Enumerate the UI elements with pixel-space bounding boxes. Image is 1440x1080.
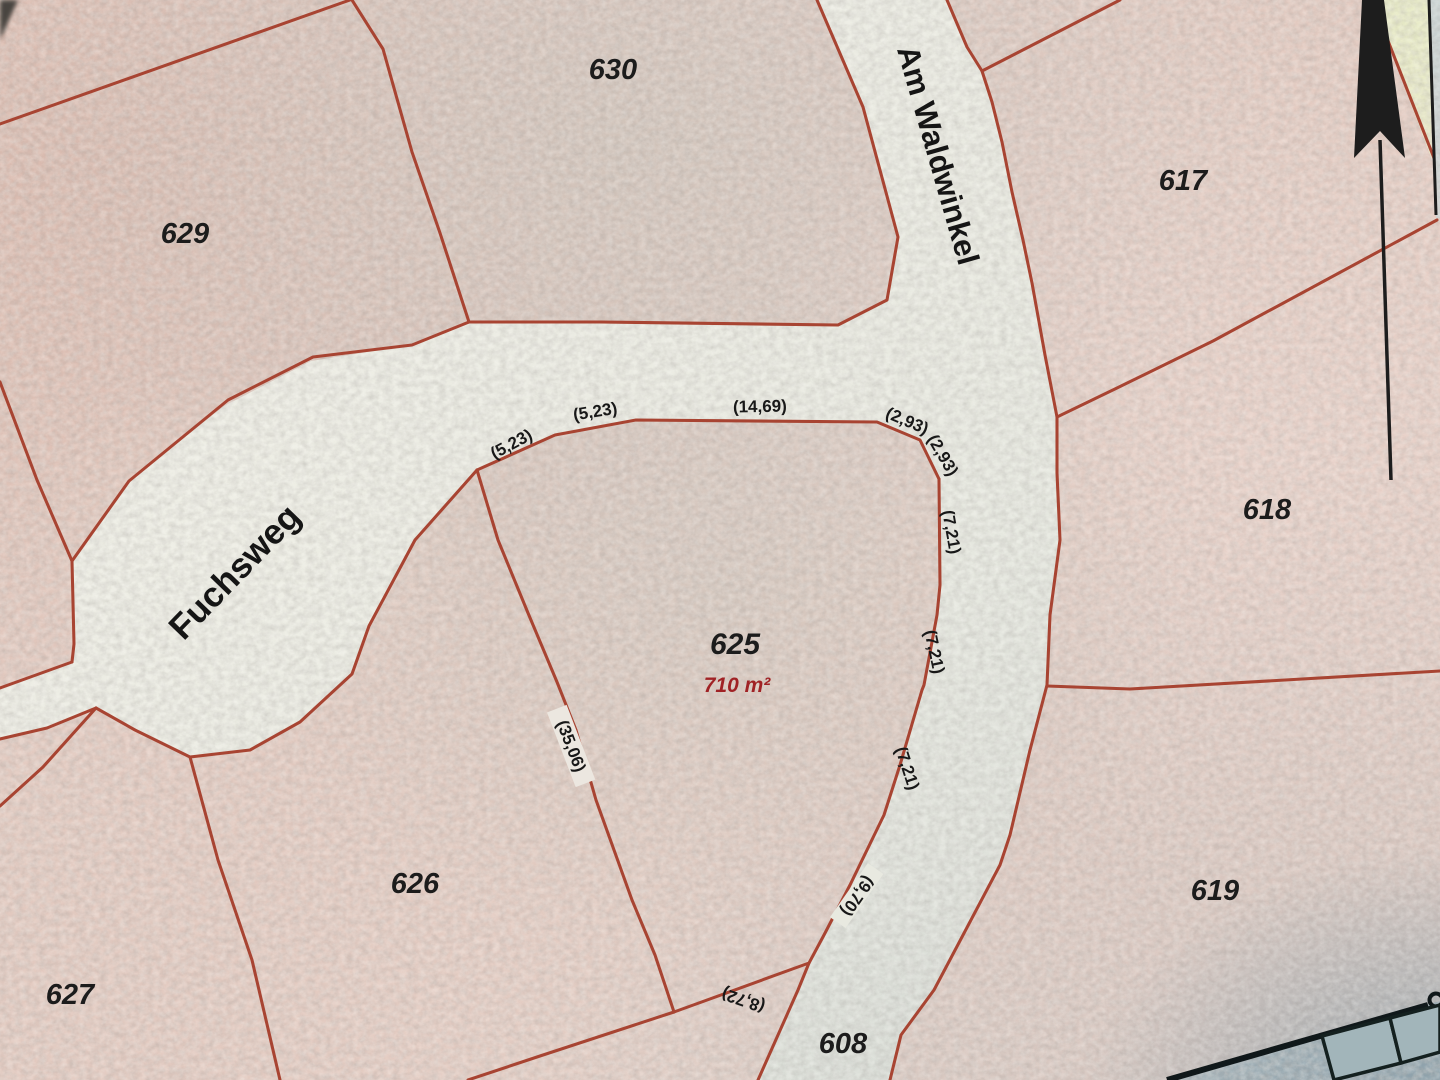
svg-text:630: 630 — [589, 54, 637, 86]
svg-text:626: 626 — [391, 868, 440, 900]
svg-text:629: 629 — [161, 218, 209, 250]
svg-text:(14,69): (14,69) — [733, 397, 787, 417]
svg-text:625: 625 — [710, 628, 761, 661]
svg-text:619: 619 — [1191, 875, 1239, 907]
svg-text:617: 617 — [1159, 165, 1209, 197]
svg-text:618: 618 — [1243, 494, 1292, 526]
svg-text:627: 627 — [46, 979, 96, 1011]
svg-text:710 m²: 710 m² — [704, 674, 772, 697]
svg-text:608: 608 — [819, 1028, 868, 1060]
